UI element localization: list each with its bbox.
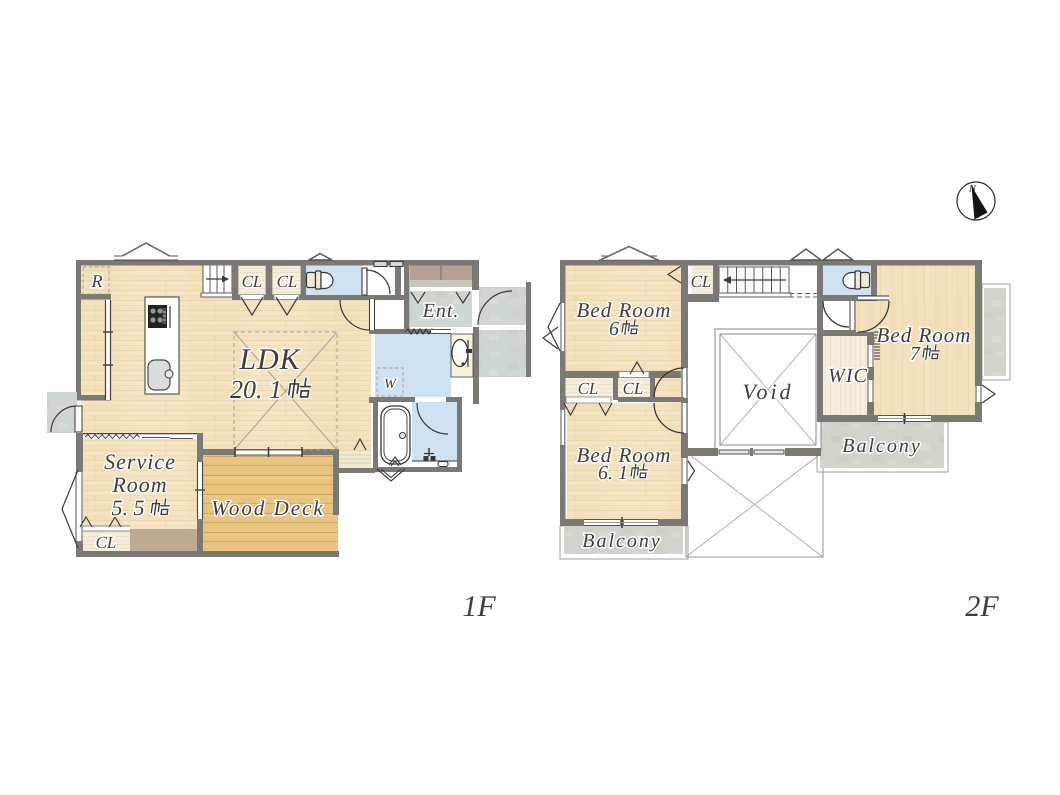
svg-text:Room: Room <box>111 472 167 497</box>
svg-text:Balcony: Balcony <box>842 435 922 457</box>
svg-text:W: W <box>384 377 397 392</box>
svg-text:R: R <box>91 271 103 291</box>
svg-text:CL: CL <box>691 272 712 291</box>
svg-text:CL: CL <box>96 533 117 552</box>
svg-text:6: 6 <box>609 318 619 340</box>
svg-text:5. 5: 5. 5 <box>112 495 145 520</box>
svg-text:CL: CL <box>578 379 599 398</box>
svg-text:Wood Deck: Wood Deck <box>211 496 324 520</box>
svg-text:N: N <box>968 185 977 195</box>
svg-text:WIC: WIC <box>828 365 868 387</box>
svg-text:LDK: LDK <box>238 343 301 376</box>
svg-text:Balcony: Balcony <box>582 530 662 552</box>
svg-text:20. 1: 20. 1 <box>230 375 282 404</box>
svg-text:Ent.: Ent. <box>422 300 460 322</box>
svg-text:6. 1: 6. 1 <box>598 462 628 484</box>
svg-text:Bed Room: Bed Room <box>577 298 672 322</box>
svg-text:1F: 1F <box>462 590 496 623</box>
svg-text:CL: CL <box>277 272 298 291</box>
svg-text:2F: 2F <box>965 590 999 623</box>
svg-text:CL: CL <box>242 272 263 291</box>
svg-text:Void: Void <box>742 379 793 404</box>
svg-text:7: 7 <box>910 343 921 365</box>
svg-text:Service: Service <box>104 449 176 474</box>
svg-text:Bed Room: Bed Room <box>877 323 972 347</box>
svg-text:CL: CL <box>623 379 644 398</box>
